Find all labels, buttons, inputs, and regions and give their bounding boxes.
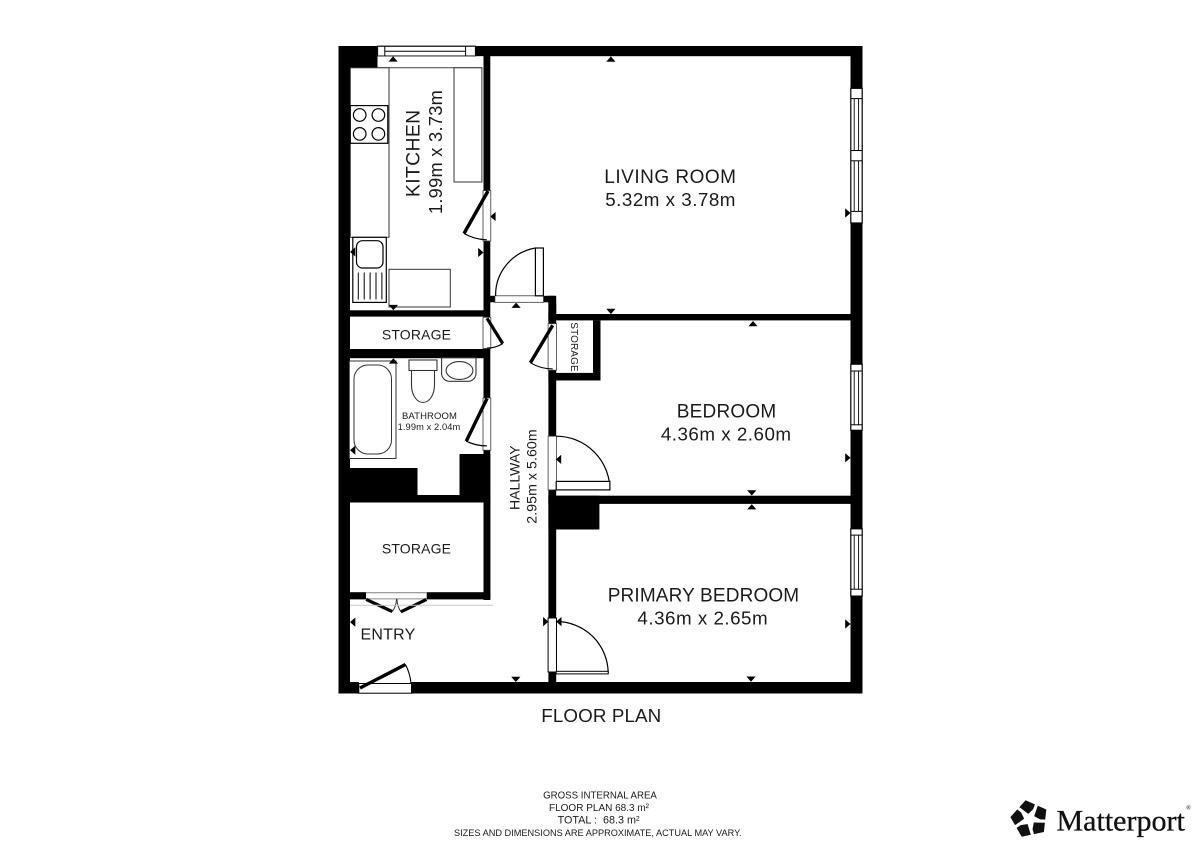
svg-text:5.32m x 3.78m: 5.32m x 3.78m — [605, 189, 736, 210]
svg-text:4.36m x 2.60m: 4.36m x 2.60m — [661, 423, 792, 444]
svg-text:Matterport: Matterport — [1057, 805, 1186, 838]
svg-text:FLOOR PLAN 68.3 m²: FLOOR PLAN 68.3 m² — [549, 803, 650, 814]
svg-text:TOTAL : 68.3 m²: TOTAL : 68.3 m² — [558, 815, 640, 827]
svg-text:STORAGE: STORAGE — [382, 540, 451, 556]
svg-text:STORAGE: STORAGE — [382, 327, 451, 343]
svg-text:ENTRY: ENTRY — [361, 627, 416, 644]
svg-text:STORAGE: STORAGE — [568, 322, 579, 372]
svg-text:SIZES AND DIMENSIONS ARE APPRO: SIZES AND DIMENSIONS ARE APPROXIMATE, AC… — [454, 828, 742, 838]
svg-text:GROSS INTERNAL AREA: GROSS INTERNAL AREA — [543, 791, 657, 802]
svg-text:LIVING ROOM: LIVING ROOM — [604, 167, 736, 188]
svg-text:1.99m x 2.04m: 1.99m x 2.04m — [398, 422, 461, 432]
svg-text:HALLWAY: HALLWAY — [507, 445, 523, 510]
svg-text:®: ® — [1186, 805, 1191, 812]
svg-text:BEDROOM: BEDROOM — [677, 402, 777, 423]
svg-text:1.99m x 3.73m: 1.99m x 3.73m — [426, 90, 446, 214]
svg-text:BATHROOM: BATHROOM — [402, 411, 457, 422]
svg-text:FLOOR PLAN: FLOOR PLAN — [541, 705, 661, 726]
svg-text:2.95m x 5.60m: 2.95m x 5.60m — [525, 429, 541, 524]
svg-text:4.36m x 2.65m: 4.36m x 2.65m — [637, 608, 768, 629]
svg-text:KITCHEN: KITCHEN — [403, 110, 425, 198]
svg-text:PRIMARY BEDROOM: PRIMARY BEDROOM — [608, 586, 800, 607]
